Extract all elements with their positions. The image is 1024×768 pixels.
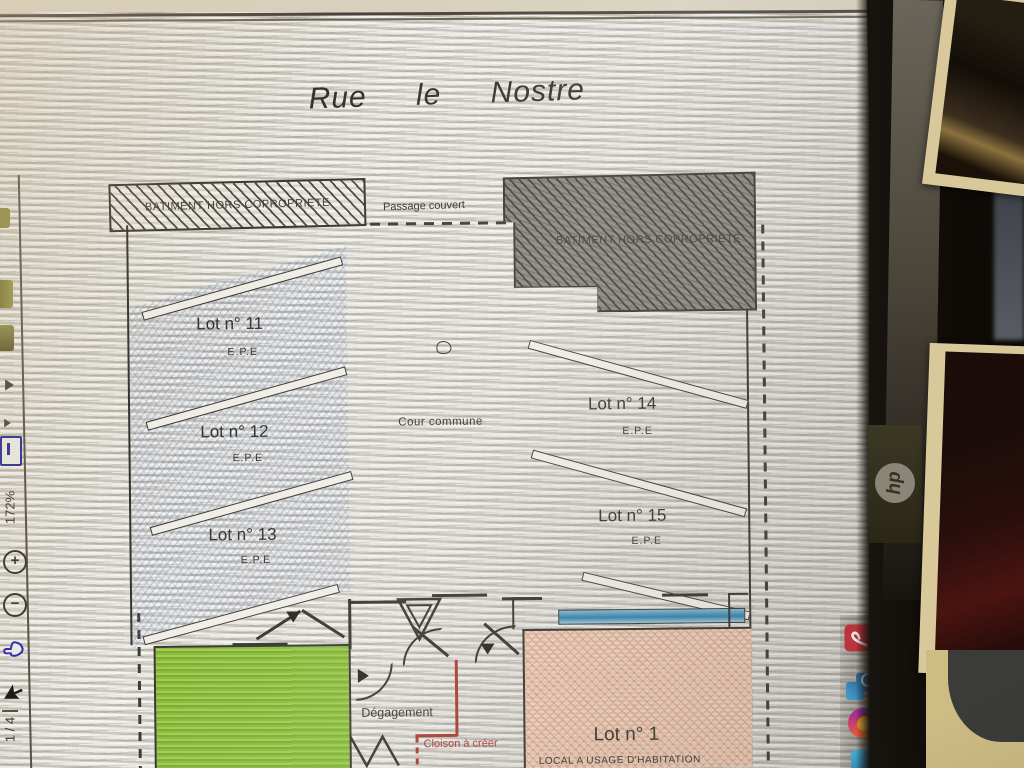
toolbar-icon-fragment[interactable] <box>0 280 13 308</box>
select-tool-icon[interactable] <box>3 680 25 702</box>
building-right-label: BATIMENT HORS COPROPRIETE <box>556 232 741 246</box>
partition-line <box>455 660 458 736</box>
wall-seg <box>348 599 352 649</box>
partition-line-dashed <box>416 736 419 768</box>
lot-11-label: Lot n° 11 <box>196 314 263 335</box>
lot-12-label: Lot n° 12 <box>200 422 268 443</box>
dark-object <box>948 650 1024 742</box>
courtyard-symbol <box>436 341 451 354</box>
building-right-outline: BATIMENT HORS COPROPRIETE <box>503 171 757 314</box>
building-left-hatched: BATIMENT HORS COPROPRIETE <box>108 178 366 232</box>
lot-12-type: E.P.E <box>233 452 264 464</box>
lot-15-type: E.P.E <box>631 535 662 547</box>
partition-line <box>415 734 457 737</box>
photo-of-monitor: Rue le Nostre BATIMENT HORS COPROPRIETE … <box>0 0 1024 768</box>
lot-1-label: Lot n° 1 <box>593 724 659 747</box>
hallway-label: Dégagement <box>361 705 433 720</box>
zoom-in-button[interactable]: + <box>3 550 27 574</box>
lot-13-label: Lot n° 13 <box>208 525 276 546</box>
monitor-bezel: hp <box>856 0 1024 768</box>
passage-dashed-line <box>370 221 510 225</box>
door-arrow <box>286 611 300 622</box>
photo-print-right-image <box>935 351 1024 665</box>
page-navigation-icon[interactable] <box>0 436 22 466</box>
lot-14-label: Lot n° 14 <box>588 394 656 415</box>
toolbar-arrow-icon[interactable] <box>5 379 14 390</box>
green-room <box>154 644 352 768</box>
pink-room-lot1 <box>522 627 752 768</box>
partition-label: Cloison à créer <box>424 737 498 750</box>
toolbar-icon-fragment[interactable] <box>0 208 10 228</box>
hand-tool-icon[interactable] <box>1 636 27 662</box>
stairs-symbol <box>347 732 403 768</box>
passage-label: Passage couvert <box>383 199 465 213</box>
lot-11-type: E.P.E <box>227 346 258 358</box>
building-left-label: BATIMENT HORS COPROPRIETE <box>145 197 330 214</box>
wall-seg <box>233 643 288 647</box>
wall-seg <box>662 593 708 596</box>
zoom-out-button[interactable]: − <box>3 593 27 617</box>
wall-step <box>728 593 748 627</box>
photo-print-top-image <box>935 0 1024 185</box>
street-title: Rue le Nostre <box>276 72 617 117</box>
courtyard-label: Cour commune <box>398 416 483 429</box>
floor-plan: Rue le Nostre BATIMENT HORS COPROPRIETE … <box>0 0 892 768</box>
window-band <box>558 608 745 625</box>
lot-15-label: Lot n° 15 <box>598 506 666 527</box>
hp-sticker: hp <box>868 425 922 543</box>
lot-1-type: LOCAL A USAGE D'HABITATION <box>539 754 701 767</box>
door-arc <box>355 663 393 701</box>
toolbar-arrow-icon[interactable] <box>4 419 11 427</box>
desk-corner <box>926 650 1024 768</box>
toolbar-icon-fragment[interactable] <box>0 325 14 351</box>
lot-13-type: E.P.E <box>241 554 272 566</box>
lot-14-type: E.P.E <box>622 425 653 437</box>
door-line <box>302 609 346 638</box>
hp-logo-text: hp <box>884 471 906 494</box>
photo-print-right <box>918 343 1024 677</box>
right-dashed-boundary <box>761 225 769 765</box>
page-indicator: 1 / 4 <box>3 708 18 752</box>
hp-logo: hp <box>875 463 915 503</box>
zoom-level-value: 172% <box>3 488 18 528</box>
monitor-screen: Rue le Nostre BATIMENT HORS COPROPRIETE … <box>0 0 888 768</box>
door-arrow <box>481 643 495 654</box>
